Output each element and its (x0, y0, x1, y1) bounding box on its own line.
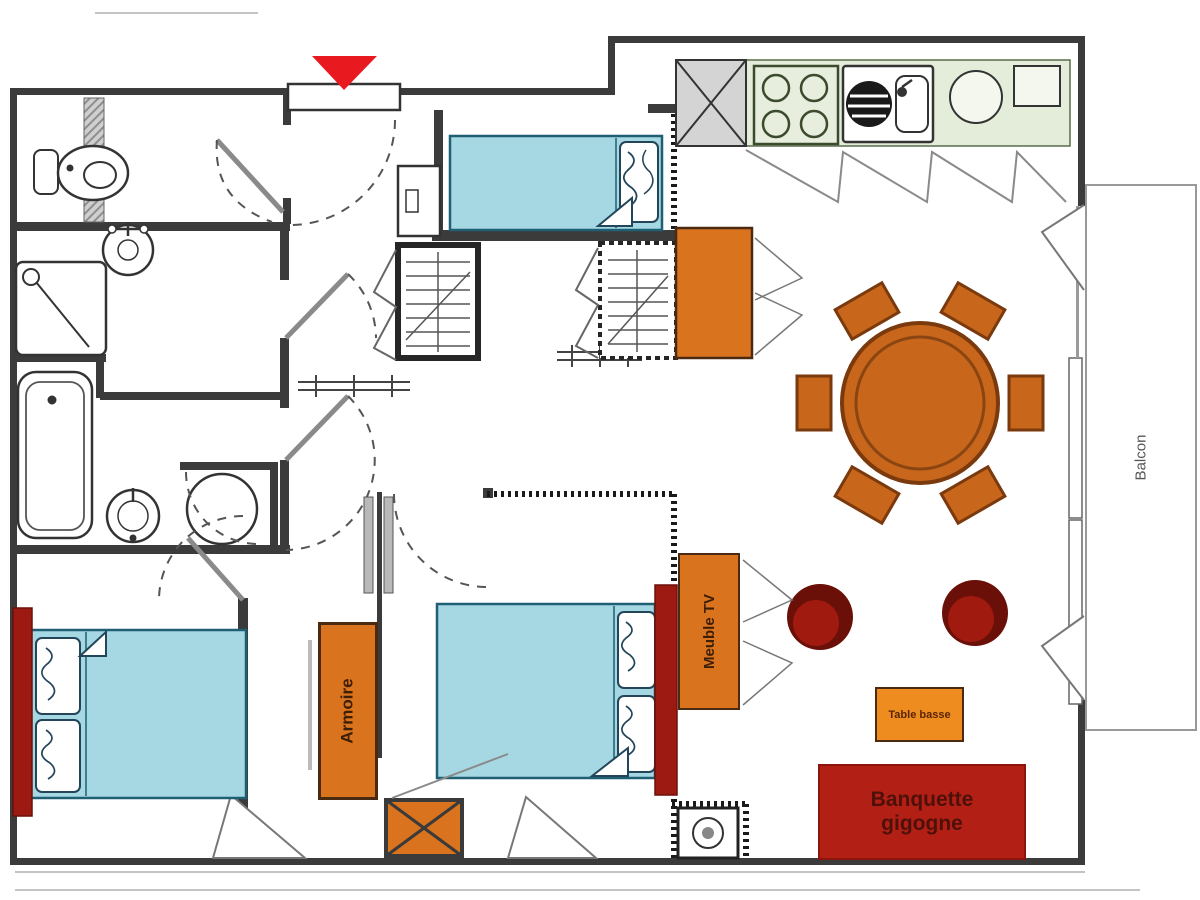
double-bed-middle (437, 585, 677, 795)
headboard-red (655, 585, 677, 795)
banquette-text: Banquette gigogne (838, 788, 1006, 836)
dresser (676, 228, 802, 358)
armoire-text: Armoire (338, 678, 358, 743)
kitchen (676, 60, 1070, 202)
wc-toilet-icon (34, 146, 128, 200)
armchair-left (787, 584, 853, 650)
washing-machine-icon (678, 808, 738, 858)
washbasin2-icon (107, 488, 159, 542)
table-basse-label: Table basse (875, 687, 964, 742)
floor-plan: Armoire Meuble TV Table basse Banquette … (0, 0, 1200, 900)
balcon-label: Balcon (1086, 185, 1196, 730)
double-bed-left (13, 608, 246, 816)
counter-appliance-icon (1014, 66, 1060, 106)
fridge-column-icon (676, 60, 746, 146)
dining-table (797, 283, 1043, 523)
meuble-tv-label: Meuble TV (678, 553, 740, 710)
armchair-right (942, 580, 1008, 646)
armoire-rail (308, 640, 312, 770)
table-basse-text: Table basse (888, 709, 950, 721)
stove-icon (754, 66, 838, 144)
closet-2 (576, 243, 676, 358)
bathtub-icon (18, 372, 92, 538)
kitchen-sink-icon (843, 66, 933, 142)
cabinet-doors-icon (746, 150, 1066, 202)
banquette-label: Banquette gigogne (818, 764, 1026, 860)
armoire-label: Armoire (318, 622, 378, 800)
shower-icon (16, 262, 106, 355)
single-bed (450, 136, 662, 230)
headboard-red (13, 608, 32, 816)
meuble-tv-text: Meuble TV (701, 594, 718, 669)
washbasin-icon (103, 222, 153, 275)
round-basin-icon (950, 71, 1002, 123)
closet-1 (374, 245, 478, 360)
hall-cupboard (398, 166, 440, 236)
balcony-windows (1042, 205, 1084, 704)
balcon-text: Balcon (1133, 435, 1150, 481)
tv-icon (743, 560, 792, 705)
